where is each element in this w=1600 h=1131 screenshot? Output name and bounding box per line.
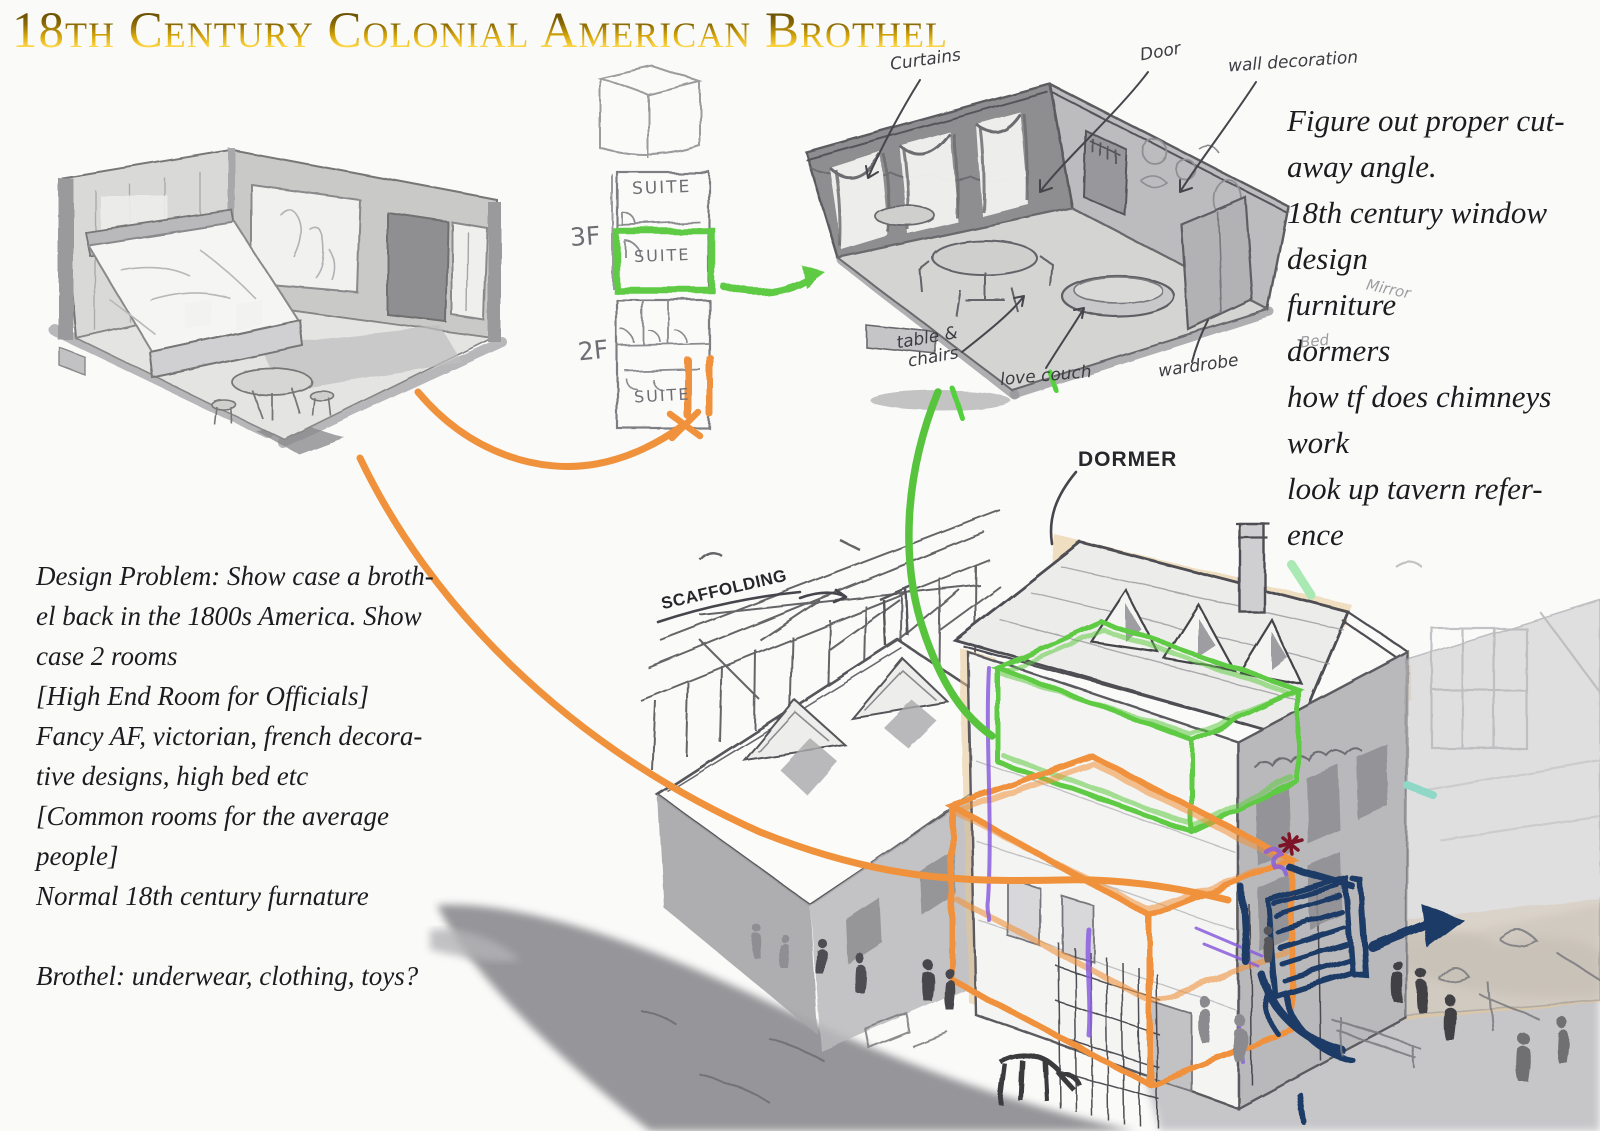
page-title: 18th Century Colonial American Brothel [12,2,948,60]
suite-label-upper: SUITE [632,177,692,199]
right-notes-block: Figure out proper cut- away angle. 18th … [1287,98,1565,558]
note-line: [High End Room for Officials] [36,676,434,716]
note-line: Figure out proper cut- [1287,98,1565,144]
note-line: Brothel: underwear, clothing, toys? [36,956,434,996]
suite-label-highlighted: SUITE [634,245,691,266]
annotation-bed: Bed [1299,331,1330,352]
note-line: away angle. [1287,144,1565,190]
annotation-dormer: DORMER [1078,448,1177,472]
note-line: 18th century window [1287,190,1565,236]
note-line: el back in the 1800s America. Show [36,596,434,636]
note-line: case 2 rooms [36,636,434,676]
note-line: look up tavern refer- [1287,466,1565,512]
note-line: work [1287,420,1565,466]
note-line: tive designs, high bed etc [36,756,434,796]
suite-label-2f: SUITE [634,385,691,407]
note-line [36,916,434,956]
floorplan-2f-label: 2F [577,334,610,366]
note-line: dormers [1287,328,1565,374]
note-line: furniture [1287,282,1565,328]
note-line: Design Problem: Show case a broth- [36,556,434,596]
note-line: how tf does chimneys [1287,374,1565,420]
concept-art-page: 18th Century Colonial American Brothel F… [0,0,1600,1131]
note-line: people] [36,836,434,876]
left-notes-block: Design Problem: Show case a broth- el ba… [36,556,434,996]
note-line: ence [1287,512,1565,558]
note-line: Normal 18th century furnature [36,876,434,916]
note-line: Fancy AF, victorian, french decora- [36,716,434,756]
note-line: [Common rooms for the average [36,796,434,836]
floorplan-3f-label: 3F [569,221,601,252]
note-line: design [1287,236,1565,282]
